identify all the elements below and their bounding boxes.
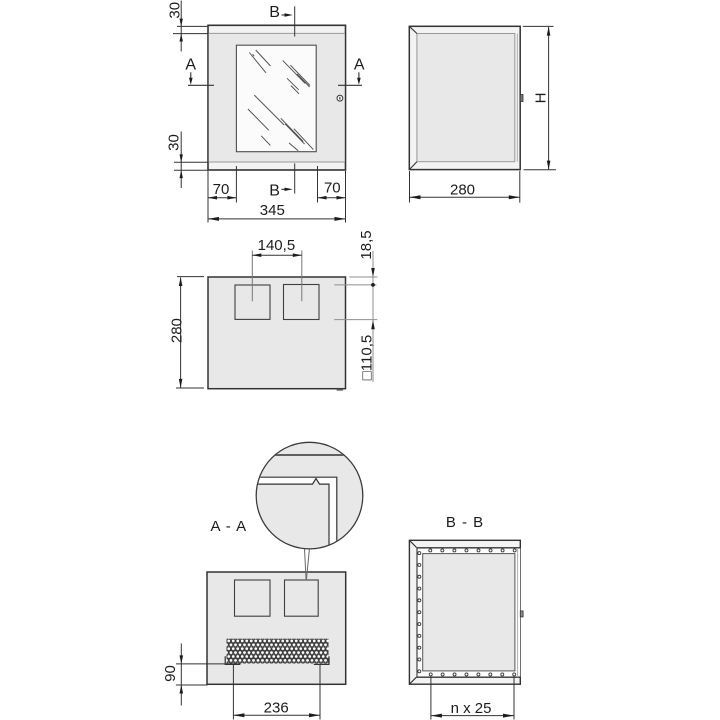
svg-text:B - B: B - B: [446, 514, 484, 531]
svg-text:30: 30: [166, 134, 183, 151]
svg-text:H: H: [532, 93, 549, 104]
svg-text:70: 70: [324, 179, 341, 196]
svg-text:B: B: [269, 4, 280, 21]
svg-text:140,5: 140,5: [258, 237, 296, 254]
svg-text:A - A: A - A: [210, 518, 247, 535]
svg-text:345: 345: [260, 202, 285, 219]
svg-text:90: 90: [162, 665, 179, 682]
svg-text:280: 280: [169, 318, 186, 343]
svg-text:70: 70: [213, 181, 230, 198]
svg-text:30: 30: [167, 2, 184, 19]
svg-text:18,5: 18,5: [358, 230, 375, 259]
svg-text:B: B: [269, 182, 280, 199]
svg-text:□110,5: □110,5: [358, 335, 375, 380]
svg-text:n x 25: n x 25: [451, 700, 492, 717]
svg-text:A: A: [354, 57, 365, 74]
svg-text:280: 280: [450, 182, 475, 199]
svg-text:A: A: [185, 57, 196, 74]
svg-text:236: 236: [264, 699, 289, 716]
